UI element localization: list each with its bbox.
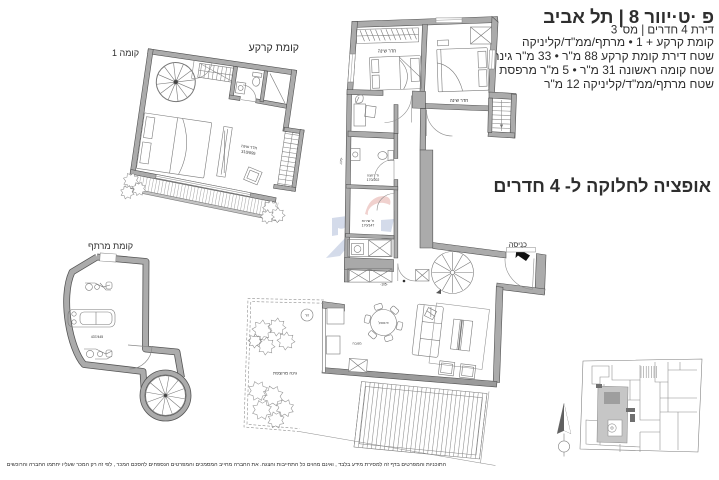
svg-text:חדר שינה: חדר שינה xyxy=(378,49,397,54)
svg-text:קומת מרתף: קומת מרתף xyxy=(88,241,133,251)
svg-text:-170-: -170- xyxy=(339,157,343,165)
svg-text:437/445: 437/445 xyxy=(91,335,103,339)
svg-text:ח' רחצה: ח' רחצה xyxy=(367,174,380,178)
svg-text:170/147: 170/147 xyxy=(362,224,375,228)
svg-text:-105-: -105- xyxy=(380,283,387,287)
svg-text:קומת קרקע + 1 • מרתף/ממ"ד/קלינ: קומת קרקע + 1 • מרתף/ממ"ד/קליניקה xyxy=(522,35,714,49)
svg-text:פ.אוכל: פ.אוכל xyxy=(378,321,388,325)
svg-text:דוד: דוד xyxy=(305,314,310,318)
svg-text:ח' שירות: ח' שירות xyxy=(362,219,375,223)
svg-text:170/202: 170/202 xyxy=(367,178,380,182)
svg-text:מטבח: מטבח xyxy=(352,342,362,346)
svg-text:שטח קומה ראשונה 31 מ"ר • 5 מ"ר: שטח קומה ראשונה 31 מ"ר • 5 מ"ר מרפסת xyxy=(499,63,714,77)
svg-text:קומה 1: קומה 1 xyxy=(112,48,139,58)
svg-text:קומת קרקע: קומת קרקע xyxy=(249,42,299,54)
svg-text:אופציה לחלוקה ל- 4 חדרים: אופציה לחלוקה ל- 4 חדרים xyxy=(493,176,711,196)
svg-text:התוכניות והמפרטים בדף זה למסיר: התוכניות והמפרטים בדף זה למסירת מידע בלב… xyxy=(7,461,446,468)
svg-text:חדר שינה: חדר שינה xyxy=(450,98,469,103)
svg-text:שטח מרתף/ממ"ד/קליניקה 12 מ"ר: שטח מרתף/ממ"ד/קליניקה 12 מ"ר xyxy=(544,77,714,91)
svg-text:שטח דירת קומת קרקע 88 מ"ר • 33: שטח דירת קומת קרקע 88 מ"ר • 33 מ"ר גינה xyxy=(492,49,714,63)
svg-text:גינה מרוצפת: גינה מרוצפת xyxy=(273,371,297,376)
